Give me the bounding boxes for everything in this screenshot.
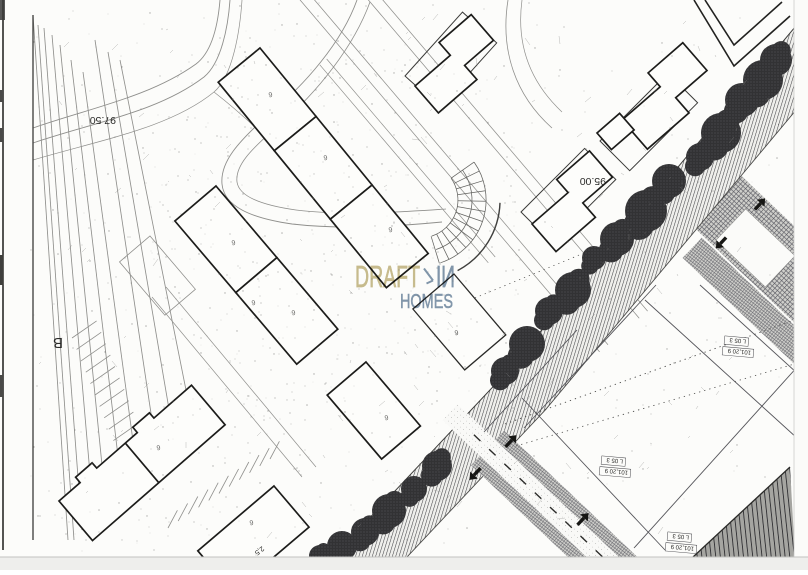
svg-text:95.00: 95.00 [580, 175, 606, 187]
svg-text:B: B [53, 334, 63, 351]
svg-text:DRAFT: DRAFT [355, 260, 420, 294]
svg-text:HOMES: HOMES [400, 291, 453, 313]
svg-text:97.50: 97.50 [90, 114, 116, 126]
svg-text:IИ: IИ [436, 260, 455, 294]
